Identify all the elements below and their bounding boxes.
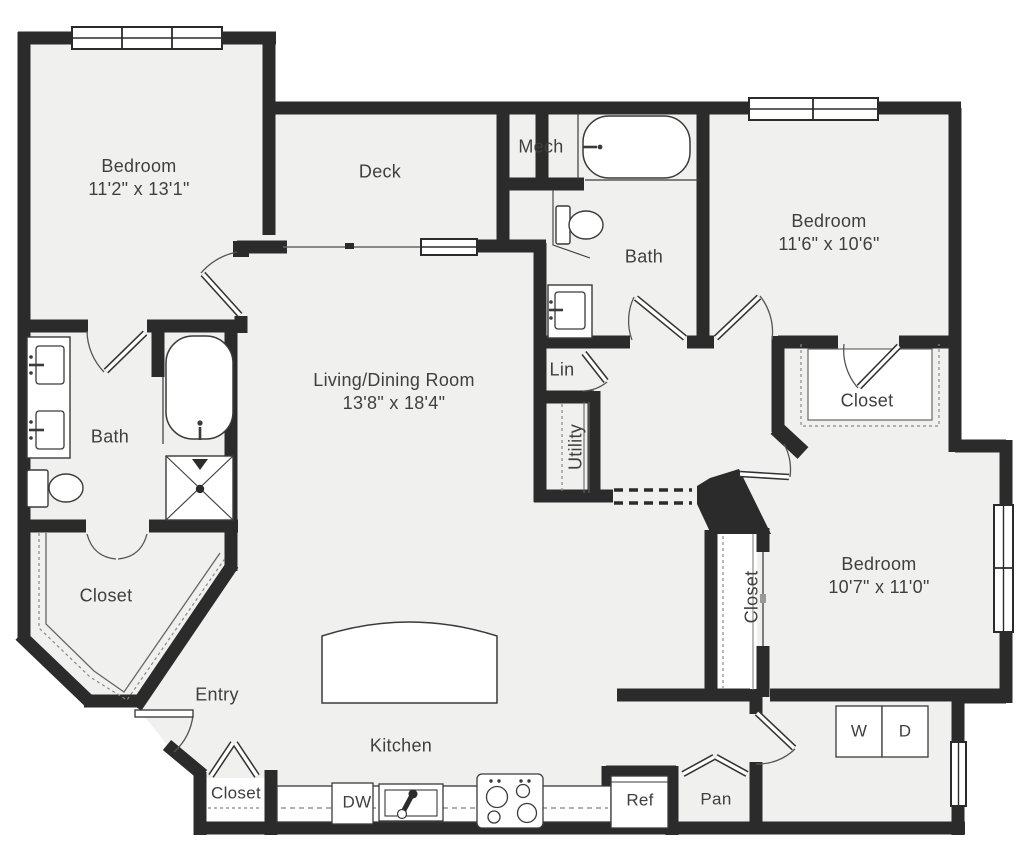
washer-label: W: [851, 720, 867, 743]
bathtub-icon-master: [163, 336, 233, 444]
railing-post: [345, 243, 354, 249]
bedroom2-label: Bedroom 11'6" x 10'6": [778, 210, 879, 256]
kitchen-sink-icon: [379, 784, 443, 821]
room-dims: 11'6" x 10'6": [778, 233, 879, 256]
entry-label: Entry: [195, 684, 239, 707]
window-bedroom1: [72, 27, 222, 49]
island-counter: [322, 622, 497, 703]
room-dims: 13'8" x 18'4": [313, 392, 474, 415]
floorplan-drawing: [0, 0, 1024, 853]
bath-master-label: Bath: [91, 426, 129, 449]
bedroom2-closet-label: Closet: [841, 390, 894, 413]
room-name: Bedroom: [88, 155, 189, 178]
window-bedroom2: [749, 98, 878, 120]
kitchen-label: Kitchen: [370, 735, 432, 758]
kitchen-counter: [277, 786, 611, 822]
window-bedroom3: [994, 505, 1013, 632]
deck-label: Deck: [359, 161, 401, 184]
walkin-closet-label: Closet: [80, 585, 133, 608]
room-dims: 10'7" x 11'0": [828, 576, 929, 599]
leaf-front-door: [135, 710, 193, 717]
dryer-label: D: [899, 720, 912, 743]
sliding-door-deck: [421, 239, 477, 255]
utility-label: Utility: [565, 424, 588, 470]
living-label: Living/Dining Room 13'8" x 18'4": [313, 369, 474, 415]
bathtub-icon-upper: [578, 114, 700, 180]
room-dims: 11'2" x 13'1": [88, 178, 189, 201]
mech-label: Mech: [518, 136, 563, 159]
refrigerator-label: Ref: [626, 789, 653, 812]
entry-closet-label: Closet: [211, 782, 261, 805]
stove-icon: [477, 774, 543, 828]
room-name: Bedroom: [778, 210, 879, 233]
dishwasher-label: DW: [343, 791, 372, 814]
floorplan: Bedroom 11'2" x 13'1" Deck Mech Bath Bed…: [0, 0, 1024, 853]
bedroom3-closet-label: Closet: [741, 571, 764, 624]
room-name: Living/Dining Room: [313, 369, 474, 392]
room-name: Bedroom: [828, 553, 929, 576]
sink-vanity-icon-upper: [548, 285, 592, 338]
bedroom3-label: Bedroom 10'7" x 11'0": [828, 553, 929, 599]
shower-icon: [166, 456, 233, 520]
bedroom1-label: Bedroom 11'2" x 13'1": [88, 155, 189, 201]
double-vanity-icon: [27, 337, 70, 458]
wall-stub-bedroom1-door: [233, 241, 249, 257]
window-laundry: [951, 742, 966, 806]
lin-label: Lin: [550, 359, 575, 382]
laundry-fixtures: [836, 706, 928, 757]
bath-upper-label: Bath: [625, 246, 663, 269]
pantry-label: Pan: [700, 788, 731, 811]
